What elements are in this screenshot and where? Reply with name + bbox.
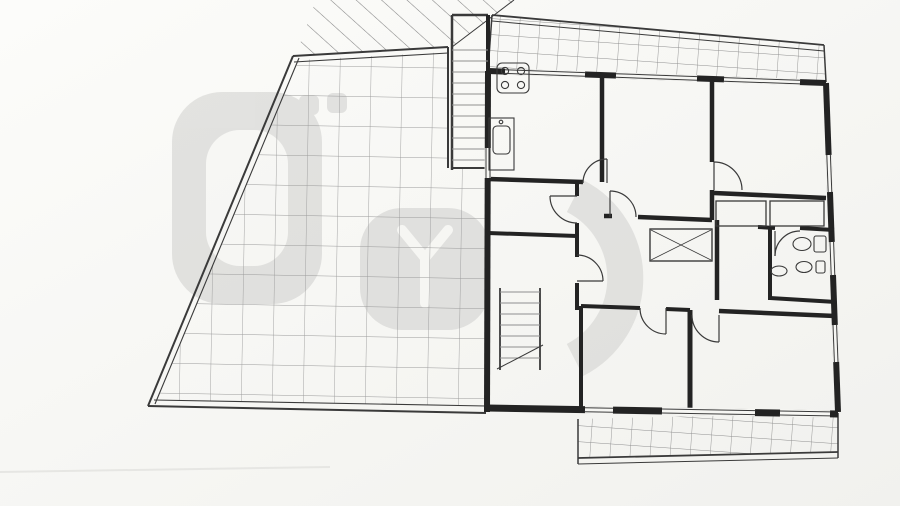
floor-plan-svg — [0, 0, 900, 506]
scanned-floor-plan — [0, 0, 900, 506]
